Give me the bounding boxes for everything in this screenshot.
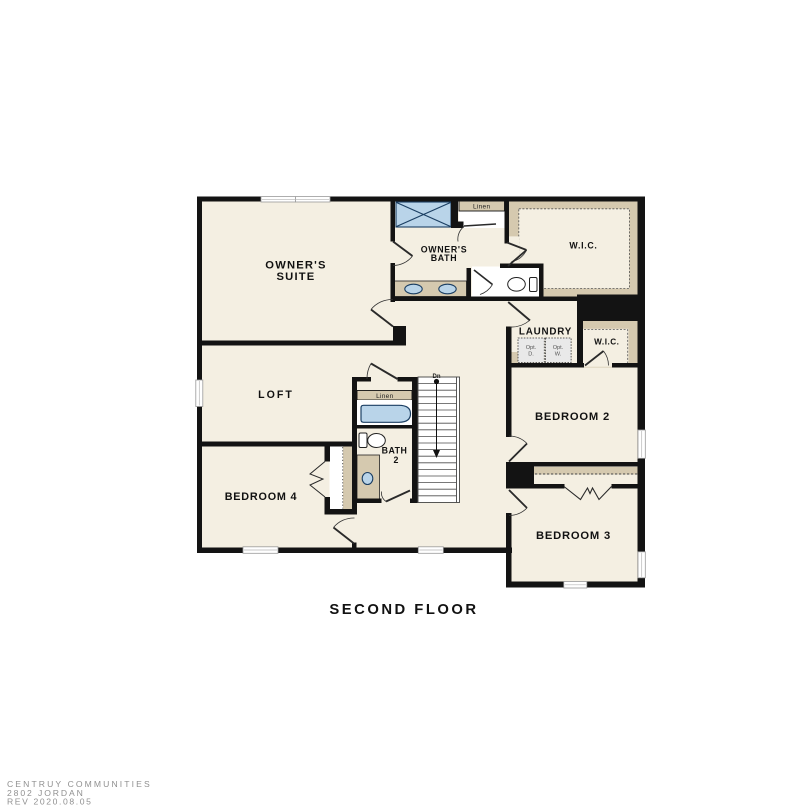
svg-text:BATH: BATH <box>431 253 458 263</box>
svg-text:LAUNDRY: LAUNDRY <box>519 327 572 338</box>
svg-text:OWNER'S: OWNER'S <box>265 260 326 272</box>
svg-text:Opt.: Opt. <box>553 345 564 351</box>
svg-text:SECOND FLOOR: SECOND FLOOR <box>329 602 478 618</box>
svg-text:SUITE: SUITE <box>277 271 316 283</box>
svg-text:Opt.: Opt. <box>526 345 537 351</box>
svg-text:Dn: Dn <box>433 374 441 380</box>
svg-text:W.I.C.: W.I.C. <box>594 338 619 347</box>
svg-text:W.I.C.: W.I.C. <box>569 241 597 251</box>
svg-text:BEDROOM 4: BEDROOM 4 <box>225 491 298 503</box>
svg-text:REV 2020.08.05: REV 2020.08.05 <box>7 797 92 807</box>
svg-text:W.: W. <box>555 352 562 358</box>
svg-text:BEDROOM 3: BEDROOM 3 <box>536 530 611 542</box>
svg-text:Linen: Linen <box>376 393 393 400</box>
svg-text:2: 2 <box>394 455 399 465</box>
svg-text:Linen: Linen <box>473 203 490 210</box>
svg-text:D.: D. <box>528 352 534 358</box>
svg-text:BATH: BATH <box>382 446 408 456</box>
svg-text:BEDROOM 2: BEDROOM 2 <box>535 411 610 423</box>
svg-text:LOFT: LOFT <box>258 389 294 401</box>
